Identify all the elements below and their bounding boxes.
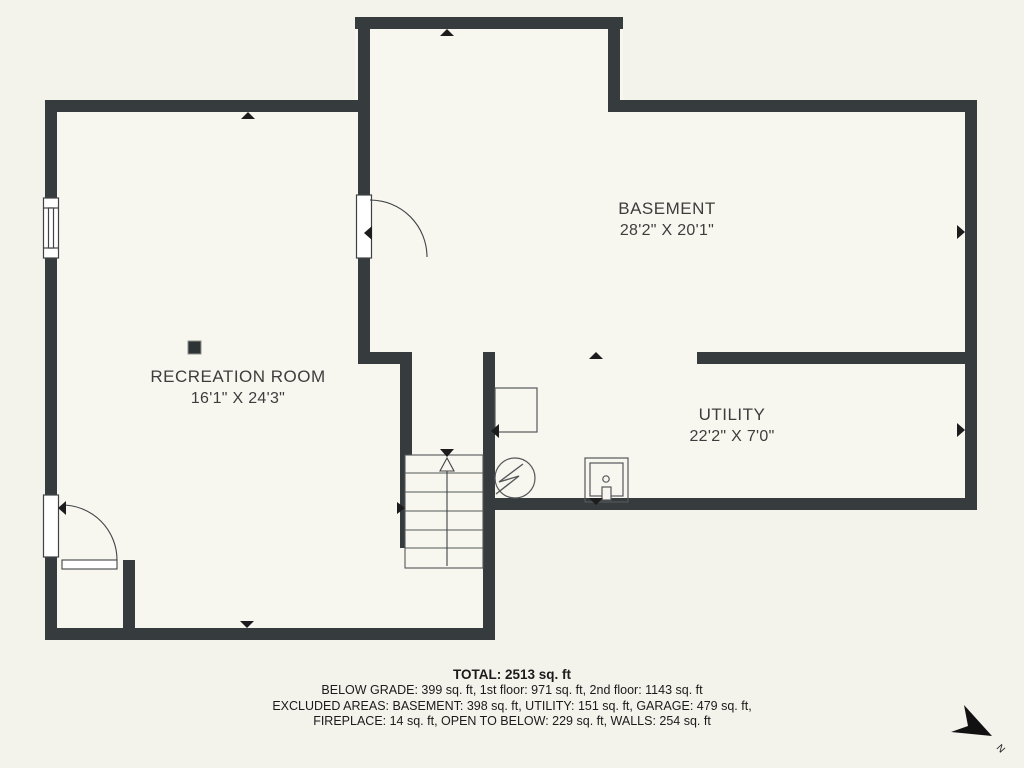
interior-top-protrusion: [355, 17, 623, 117]
floor-plan-page: N BASEMENT 28'2" X 20'1" RECREATION ROOM…: [0, 0, 1024, 768]
summary-excluded-areas: EXCLUDED AREAS: BASEMENT: 398 sq. ft, UT…: [0, 699, 1024, 715]
post-symbol: [188, 341, 201, 354]
summary-excluded-areas-continued: FIREPLACE: 14 sq. ft, OPEN TO BELOW: 229…: [0, 714, 1024, 730]
wall-segment: [355, 17, 623, 29]
summary-below-grade: BELOW GRADE: 399 sq. ft, 1st floor: 971 …: [0, 683, 1024, 699]
wall-segment: [358, 352, 412, 364]
wall-segment: [358, 258, 370, 364]
wall-segment: [965, 100, 977, 510]
wall-segment: [483, 352, 495, 640]
area-summary: TOTAL: 2513 sq. ft BELOW GRADE: 399 sq. …: [0, 666, 1024, 730]
door-jamb: [44, 495, 59, 557]
wall-segment: [123, 560, 135, 640]
stairs-symbol: [405, 455, 483, 568]
wall-segment: [45, 258, 57, 495]
wall-segment: [697, 352, 977, 364]
window-symbol: [44, 198, 59, 258]
wall-segment: [608, 100, 977, 112]
wall-segment: [45, 628, 495, 640]
door-leaf: [62, 560, 117, 569]
window-pane: [49, 208, 54, 248]
wall-segment: [45, 557, 57, 640]
north-label: N: [994, 743, 1007, 756]
door-jamb: [357, 195, 372, 258]
wall-segment: [608, 17, 620, 112]
wall-segment: [45, 100, 57, 198]
wall-segment: [45, 100, 370, 112]
floor-plan-drawing: N: [0, 0, 1024, 768]
summary-total: TOTAL: 2513 sq. ft: [0, 666, 1024, 683]
wall-segment: [483, 498, 977, 510]
laundry-sink-faucet: [602, 487, 611, 500]
water-heater-symbol: [495, 458, 535, 498]
